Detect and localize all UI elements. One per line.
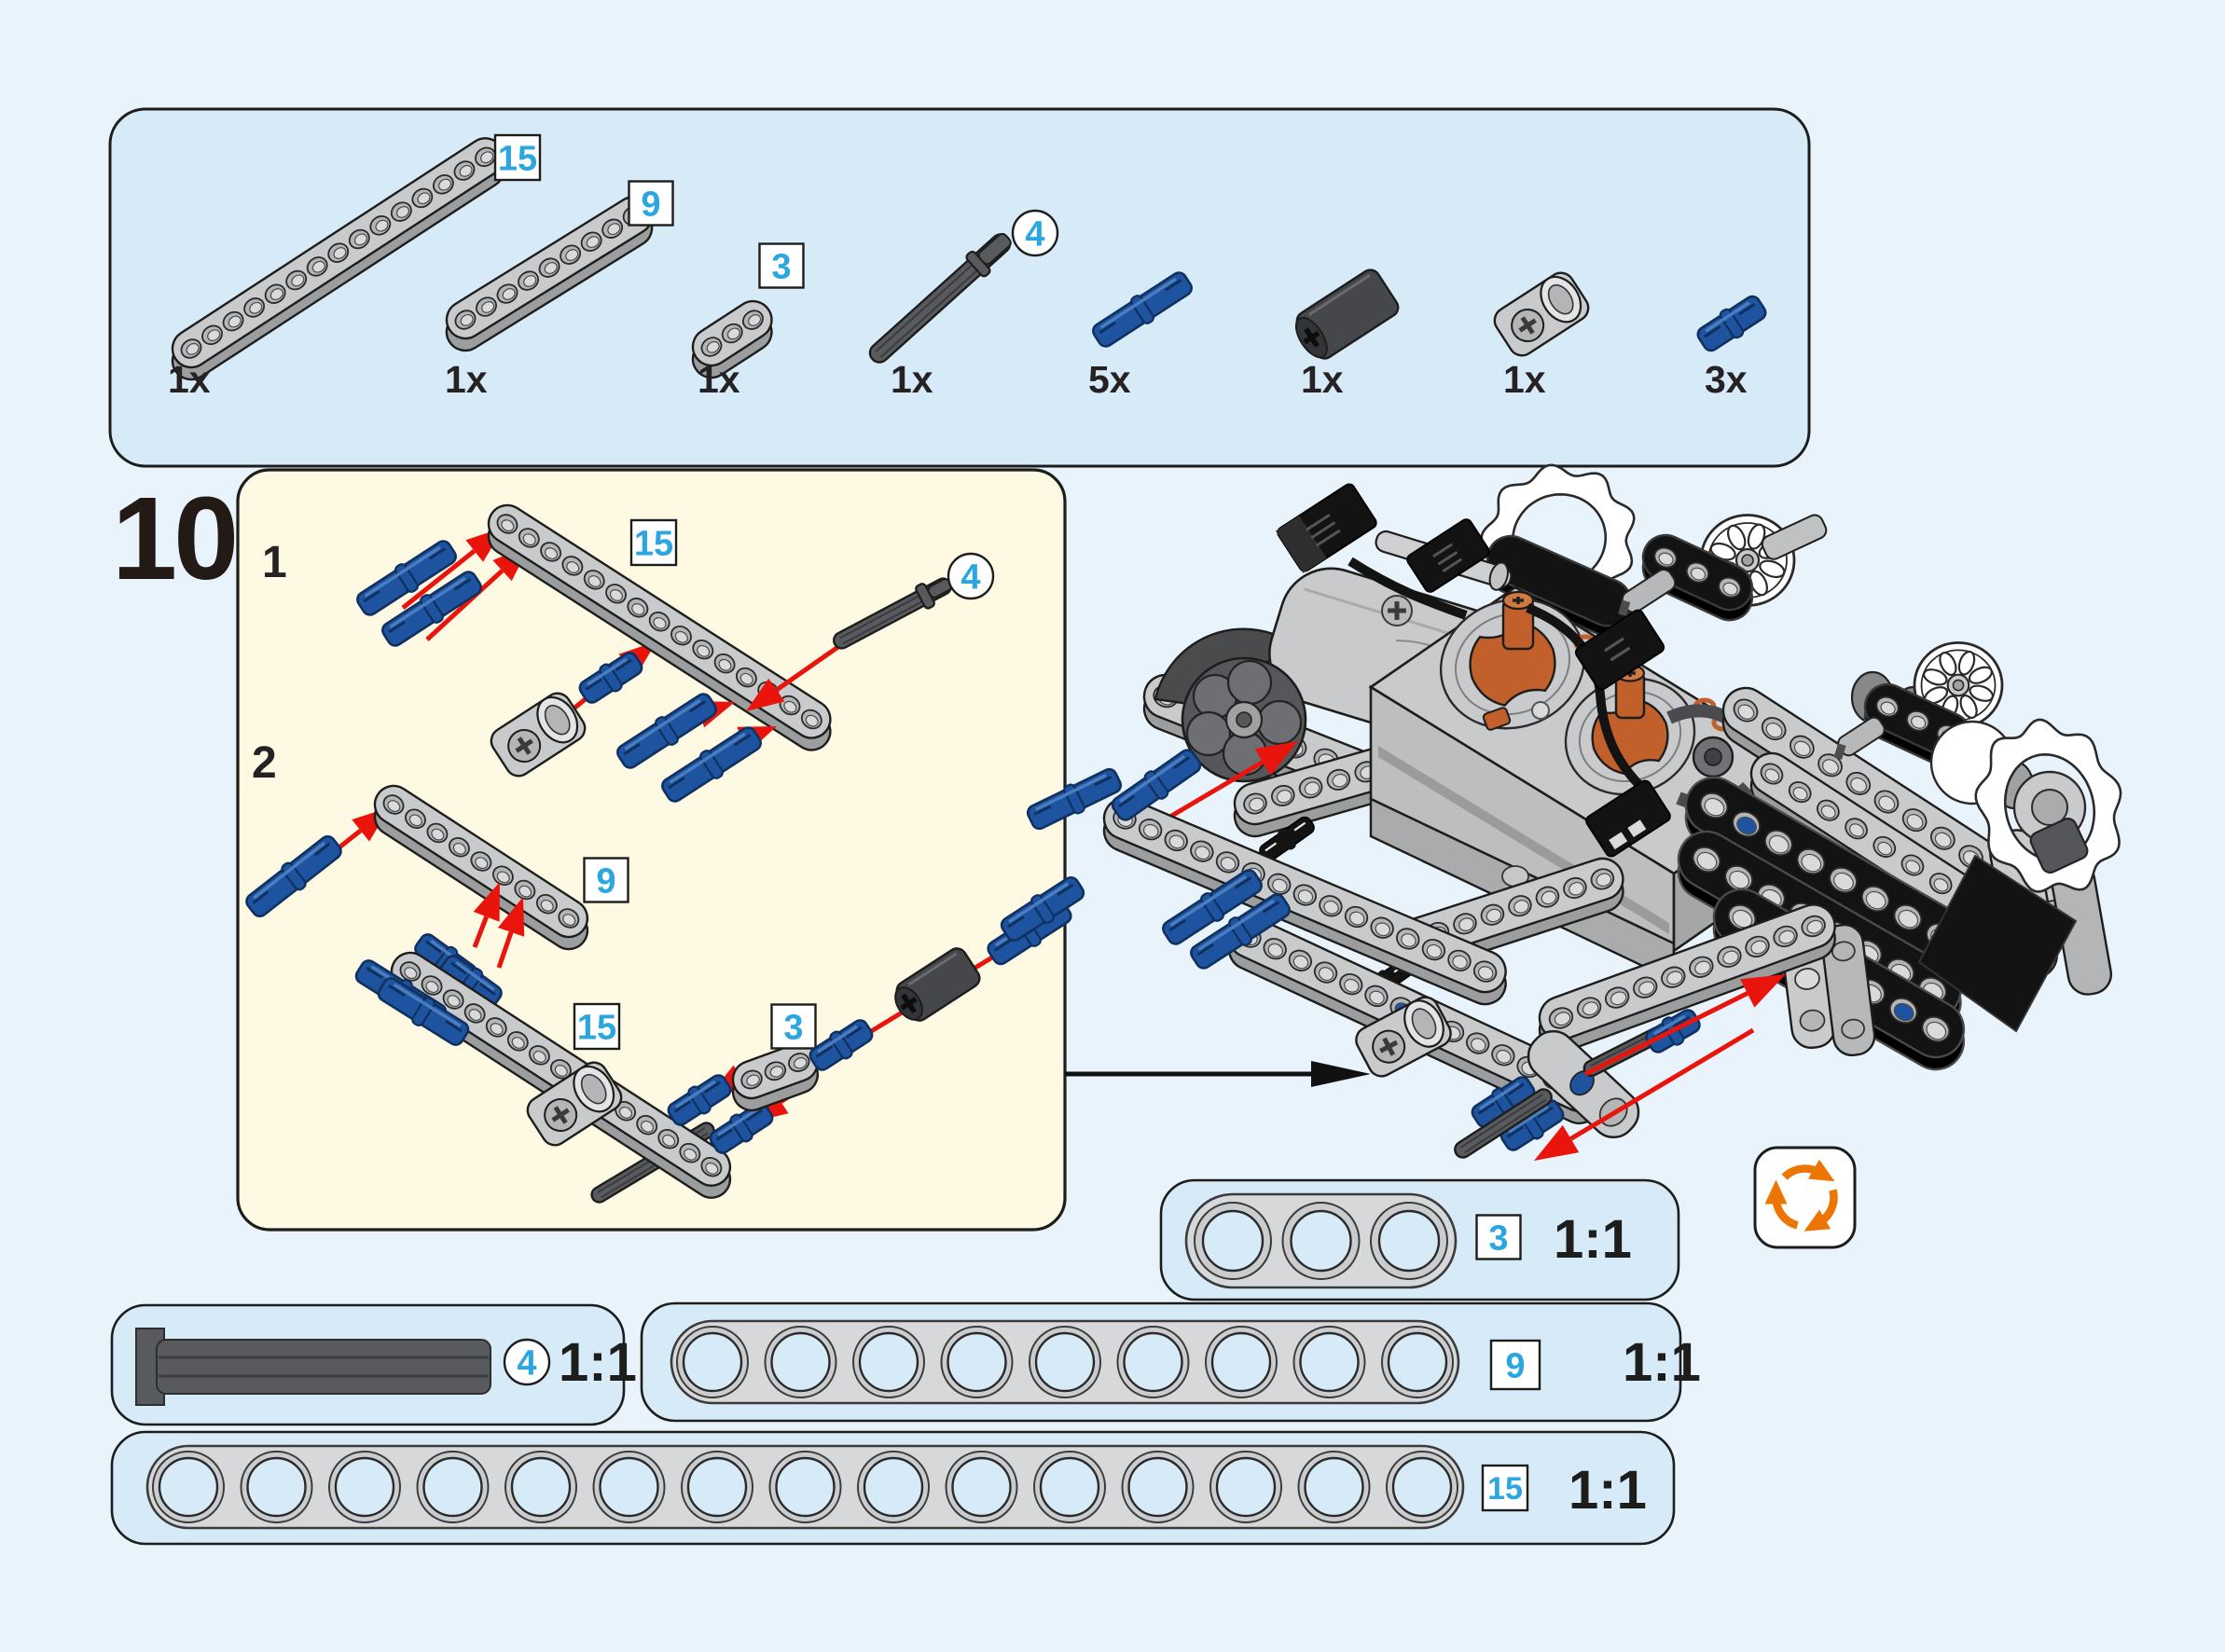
svg-text:10: 10 [112,473,235,604]
svg-text:15: 15 [634,525,673,564]
svg-text:1x: 1x [168,358,211,401]
svg-text:1x: 1x [698,358,740,401]
svg-text:1: 1 [262,538,287,587]
svg-text:4: 4 [517,1344,536,1384]
svg-text:1x: 1x [1503,358,1546,401]
svg-text:3x: 3x [1705,358,1748,401]
svg-text:9: 9 [596,862,615,902]
svg-text:3: 3 [1488,1219,1508,1259]
svg-text:2: 2 [252,738,277,788]
svg-text:5x: 5x [1088,358,1131,401]
svg-text:4: 4 [960,558,980,598]
svg-text:15: 15 [498,140,537,179]
svg-text:1:1: 1:1 [1623,1332,1701,1393]
svg-text:1x: 1x [891,358,933,401]
svg-text:1:1: 1:1 [1554,1209,1632,1270]
svg-text:9: 9 [1505,1347,1525,1386]
svg-text:1x: 1x [1301,358,1344,401]
svg-text:9: 9 [641,186,660,225]
svg-text:1x: 1x [445,358,488,401]
svg-text:1:1: 1:1 [559,1332,637,1393]
svg-text:15: 15 [577,1009,616,1048]
svg-text:1:1: 1:1 [1569,1460,1647,1521]
svg-text:4: 4 [1025,215,1044,255]
svg-text:3: 3 [771,248,791,287]
svg-text:15: 15 [1487,1471,1523,1507]
svg-text:3: 3 [783,1009,803,1048]
